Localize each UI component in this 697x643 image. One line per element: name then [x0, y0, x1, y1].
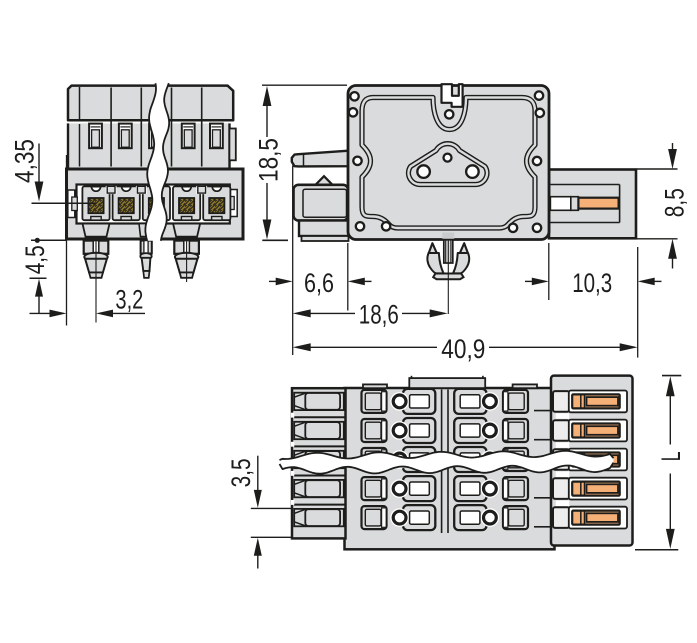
svg-text:L: L — [656, 451, 686, 461]
svg-text:4,35: 4,35 — [10, 139, 40, 183]
svg-text:8,5: 8,5 — [660, 188, 690, 217]
svg-text:18,5: 18,5 — [253, 138, 283, 182]
svg-text:10,3: 10,3 — [572, 268, 612, 298]
svg-text:40,9: 40,9 — [441, 334, 485, 364]
svg-text:4,5: 4,5 — [20, 245, 50, 274]
svg-text:6,6: 6,6 — [304, 268, 334, 298]
svg-text:3,2: 3,2 — [115, 285, 143, 315]
svg-text:3,5: 3,5 — [226, 458, 256, 487]
svg-text:18,6: 18,6 — [359, 299, 399, 329]
